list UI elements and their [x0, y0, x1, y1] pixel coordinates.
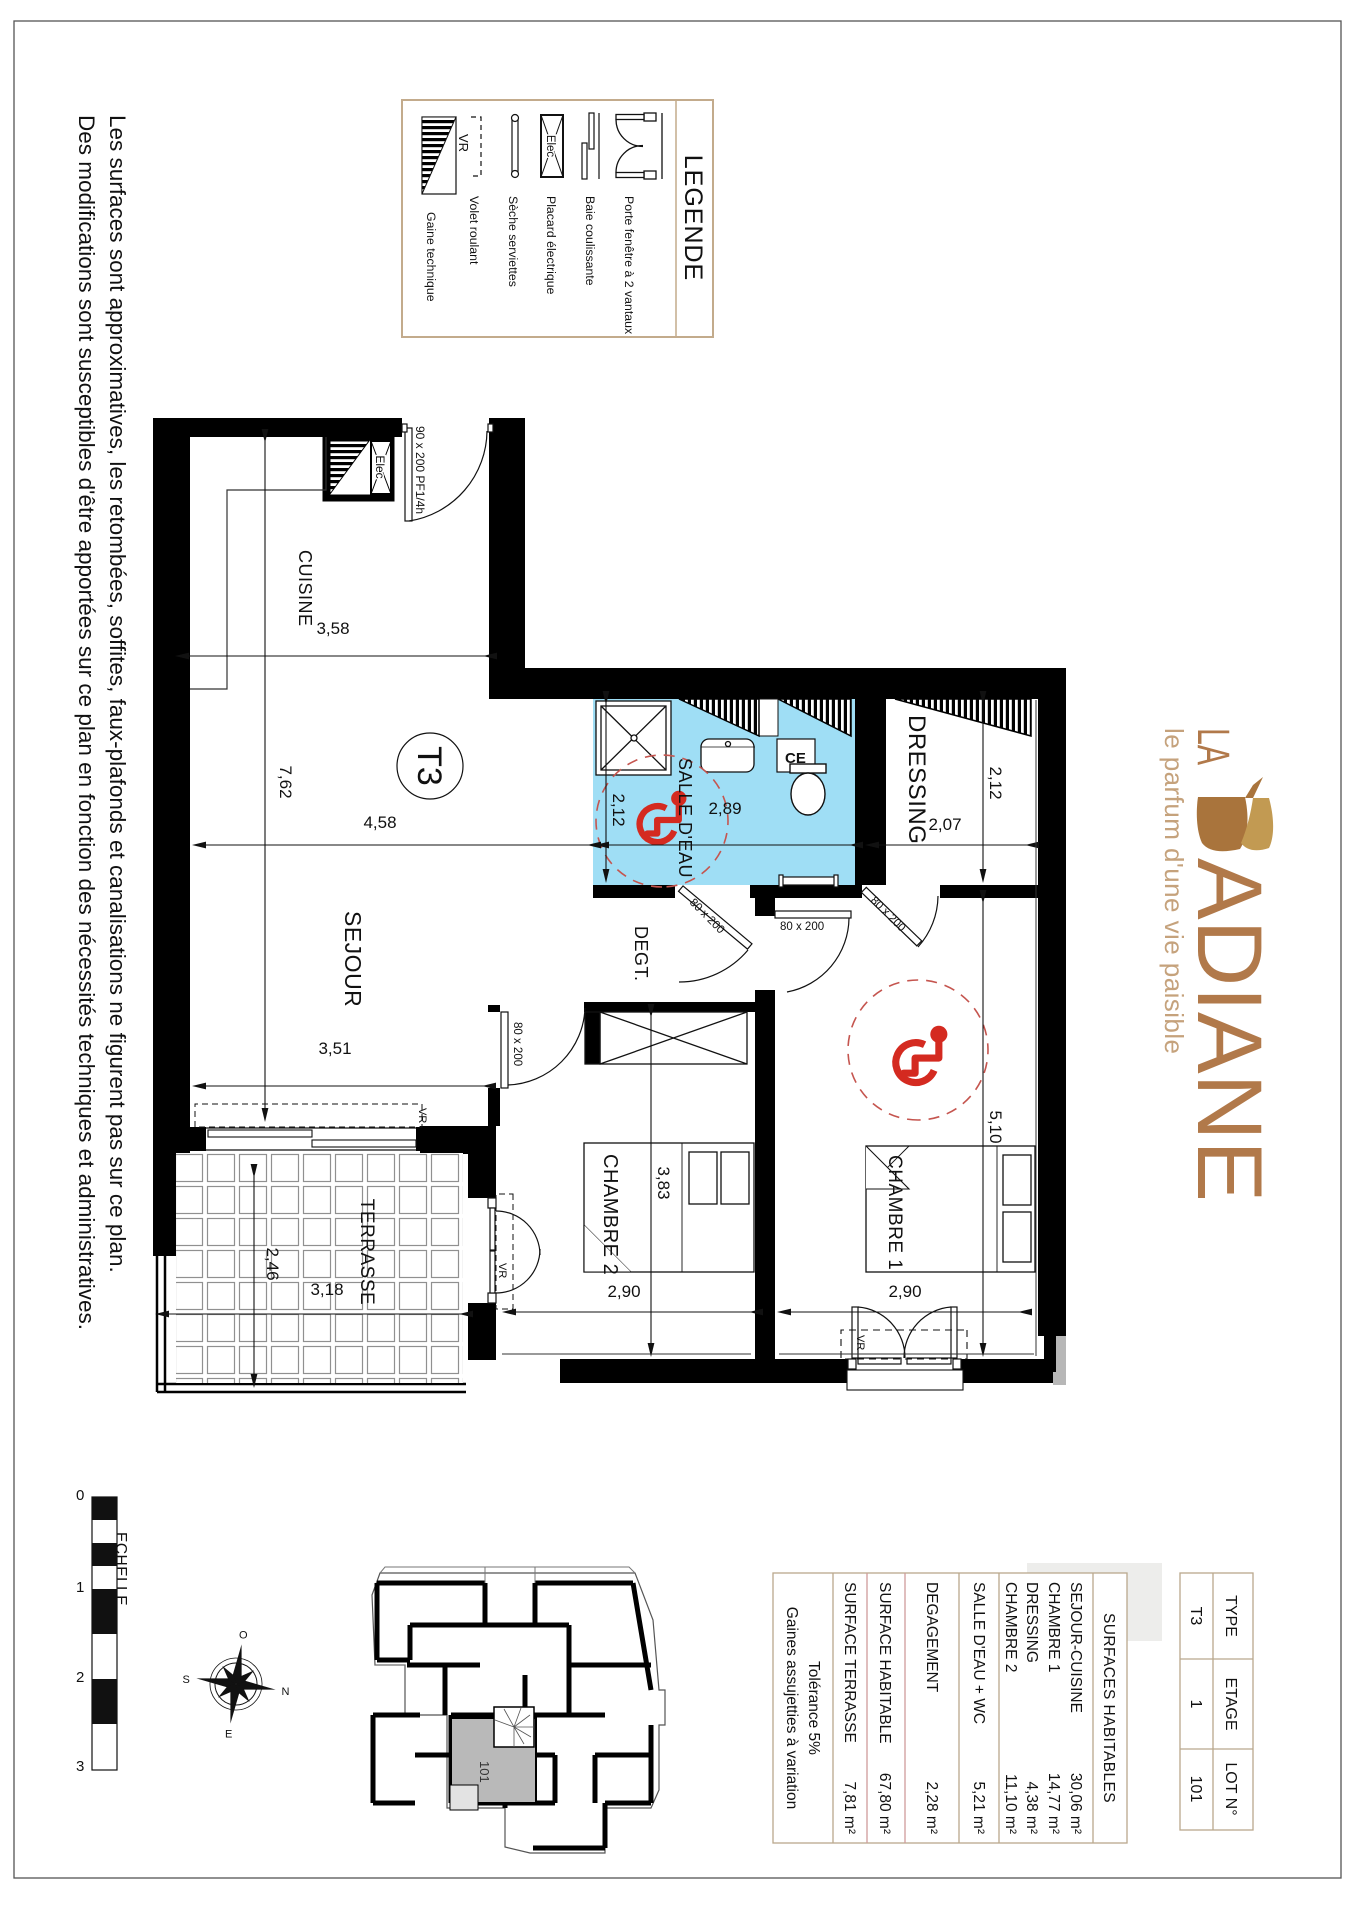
svg-text:Elec: Elec — [373, 455, 387, 478]
svg-text:2,12: 2,12 — [986, 766, 1005, 799]
svg-text:7,62: 7,62 — [276, 765, 295, 798]
svg-text:Sèche serviettes: Sèche serviettes — [506, 196, 520, 287]
svg-text:ADIANE: ADIANE — [1178, 858, 1280, 1202]
svg-text:2,89: 2,89 — [708, 799, 741, 818]
svg-text:5,21 m²: 5,21 m² — [970, 1781, 987, 1834]
svg-text:Elec: Elec — [544, 135, 556, 158]
svg-text:VR: VR — [416, 1108, 428, 1123]
svg-text:DRESSING: DRESSING — [903, 715, 930, 844]
svg-text:S: S — [182, 1674, 189, 1686]
svg-text:T3: T3 — [1187, 1607, 1204, 1626]
svg-text:CHAMBRE 2: CHAMBRE 2 — [599, 1154, 621, 1275]
svg-text:11,10 m²: 11,10 m² — [1002, 1774, 1019, 1834]
svg-text:CHAMBRE 1: CHAMBRE 1 — [1045, 1582, 1062, 1672]
svg-text:Placard électrique: Placard électrique — [544, 196, 558, 295]
svg-text:VR: VR — [456, 134, 471, 152]
svg-text:67,80 m²: 67,80 m² — [876, 1773, 893, 1834]
svg-text:3,83: 3,83 — [654, 1166, 673, 1199]
svg-text:SEJOUR-CUISINE: SEJOUR-CUISINE — [1067, 1582, 1084, 1713]
svg-text:2,07: 2,07 — [928, 815, 961, 834]
svg-text:90 x 200 PF1/4h: 90 x 200 PF1/4h — [413, 426, 427, 514]
svg-text:E: E — [225, 1729, 232, 1741]
svg-text:SALLE D'EAU + WC: SALLE D'EAU + WC — [970, 1582, 987, 1724]
svg-text:101: 101 — [1187, 1776, 1204, 1803]
svg-text:Gaine technique: Gaine technique — [424, 212, 438, 302]
svg-text:LEGENDE: LEGENDE — [679, 155, 707, 281]
svg-text:2,28 m²: 2,28 m² — [923, 1781, 940, 1834]
svg-text:TYPE: TYPE — [1222, 1595, 1239, 1637]
svg-text:DEGAGEMENT: DEGAGEMENT — [923, 1582, 940, 1693]
svg-text:TERRASSE: TERRASSE — [356, 1199, 377, 1305]
svg-text:SEJOUR: SEJOUR — [340, 911, 366, 1007]
svg-text:O: O — [239, 1629, 248, 1641]
svg-text:80 x 200: 80 x 200 — [780, 921, 824, 933]
svg-text:1: 1 — [1187, 1700, 1204, 1709]
svg-text:CUISINE: CUISINE — [295, 550, 315, 627]
svg-text:CHAMBRE 2: CHAMBRE 2 — [1002, 1582, 1019, 1672]
svg-text:Baie coulissante: Baie coulissante — [583, 196, 597, 286]
svg-text:LOT N°: LOT N° — [1222, 1762, 1239, 1815]
svg-text:Volet roulant: Volet roulant — [467, 196, 481, 265]
svg-text:3,51: 3,51 — [318, 1039, 351, 1058]
svg-text:VR: VR — [496, 1263, 508, 1278]
svg-text:5,10: 5,10 — [986, 1110, 1005, 1143]
svg-text:4,38 m²: 4,38 m² — [1023, 1781, 1040, 1834]
svg-text:SALLE D'EAU: SALLE D'EAU — [675, 758, 695, 878]
svg-text:Les surfaces sont approximativ: Les surfaces sont approximatives, les re… — [105, 115, 130, 1273]
svg-text:0: 0 — [76, 1487, 84, 1504]
svg-text:N: N — [282, 1686, 290, 1698]
svg-text:2,12: 2,12 — [609, 793, 628, 826]
svg-text:Tolérance 5%: Tolérance 5% — [805, 1661, 822, 1755]
svg-text:2,90: 2,90 — [888, 1282, 921, 1301]
svg-text:ETAGE: ETAGE — [1222, 1677, 1239, 1730]
svg-text:7,81 m²: 7,81 m² — [841, 1781, 858, 1834]
svg-text:SURFACE HABITABLE: SURFACE HABITABLE — [876, 1582, 893, 1744]
svg-text:2,90: 2,90 — [607, 1282, 640, 1301]
svg-text:SURFACE TERRASSE: SURFACE TERRASSE — [841, 1582, 858, 1743]
svg-text:3,58: 3,58 — [316, 619, 349, 638]
svg-text:2,46: 2,46 — [263, 1247, 282, 1280]
svg-text:DEGT.: DEGT. — [631, 926, 651, 982]
svg-text:DRESSING: DRESSING — [1023, 1582, 1040, 1663]
svg-text:80 x 200: 80 x 200 — [511, 1022, 523, 1066]
svg-text:Des modifications sont suscept: Des modifications sont susceptibles d'êt… — [74, 115, 99, 1330]
svg-text:3,18: 3,18 — [310, 1280, 343, 1299]
svg-text:SURFACES HABITABLES: SURFACES HABITABLES — [1100, 1613, 1117, 1803]
svg-text:VR: VR — [854, 1335, 866, 1350]
svg-text:Porte fenêtre à 2 vantaux: Porte fenêtre à 2 vantaux — [622, 196, 636, 335]
svg-text:le parfum d'une vie paisible: le parfum d'une vie paisible — [1159, 728, 1189, 1054]
svg-text:101: 101 — [477, 1761, 492, 1783]
svg-text:LA: LA — [1188, 728, 1239, 765]
svg-text:30,06 m²: 30,06 m² — [1067, 1773, 1084, 1834]
svg-text:4,58: 4,58 — [363, 813, 396, 832]
svg-text:T3: T3 — [410, 746, 448, 786]
svg-text:14,77 m²: 14,77 m² — [1045, 1773, 1062, 1834]
svg-text:2: 2 — [76, 1669, 84, 1686]
svg-text:Gaines assujetties à variation: Gaines assujetties à variation — [783, 1607, 800, 1809]
svg-text:1: 1 — [76, 1579, 84, 1596]
svg-text:3: 3 — [76, 1758, 84, 1775]
svg-text:CHAMBRE 1: CHAMBRE 1 — [884, 1155, 905, 1270]
